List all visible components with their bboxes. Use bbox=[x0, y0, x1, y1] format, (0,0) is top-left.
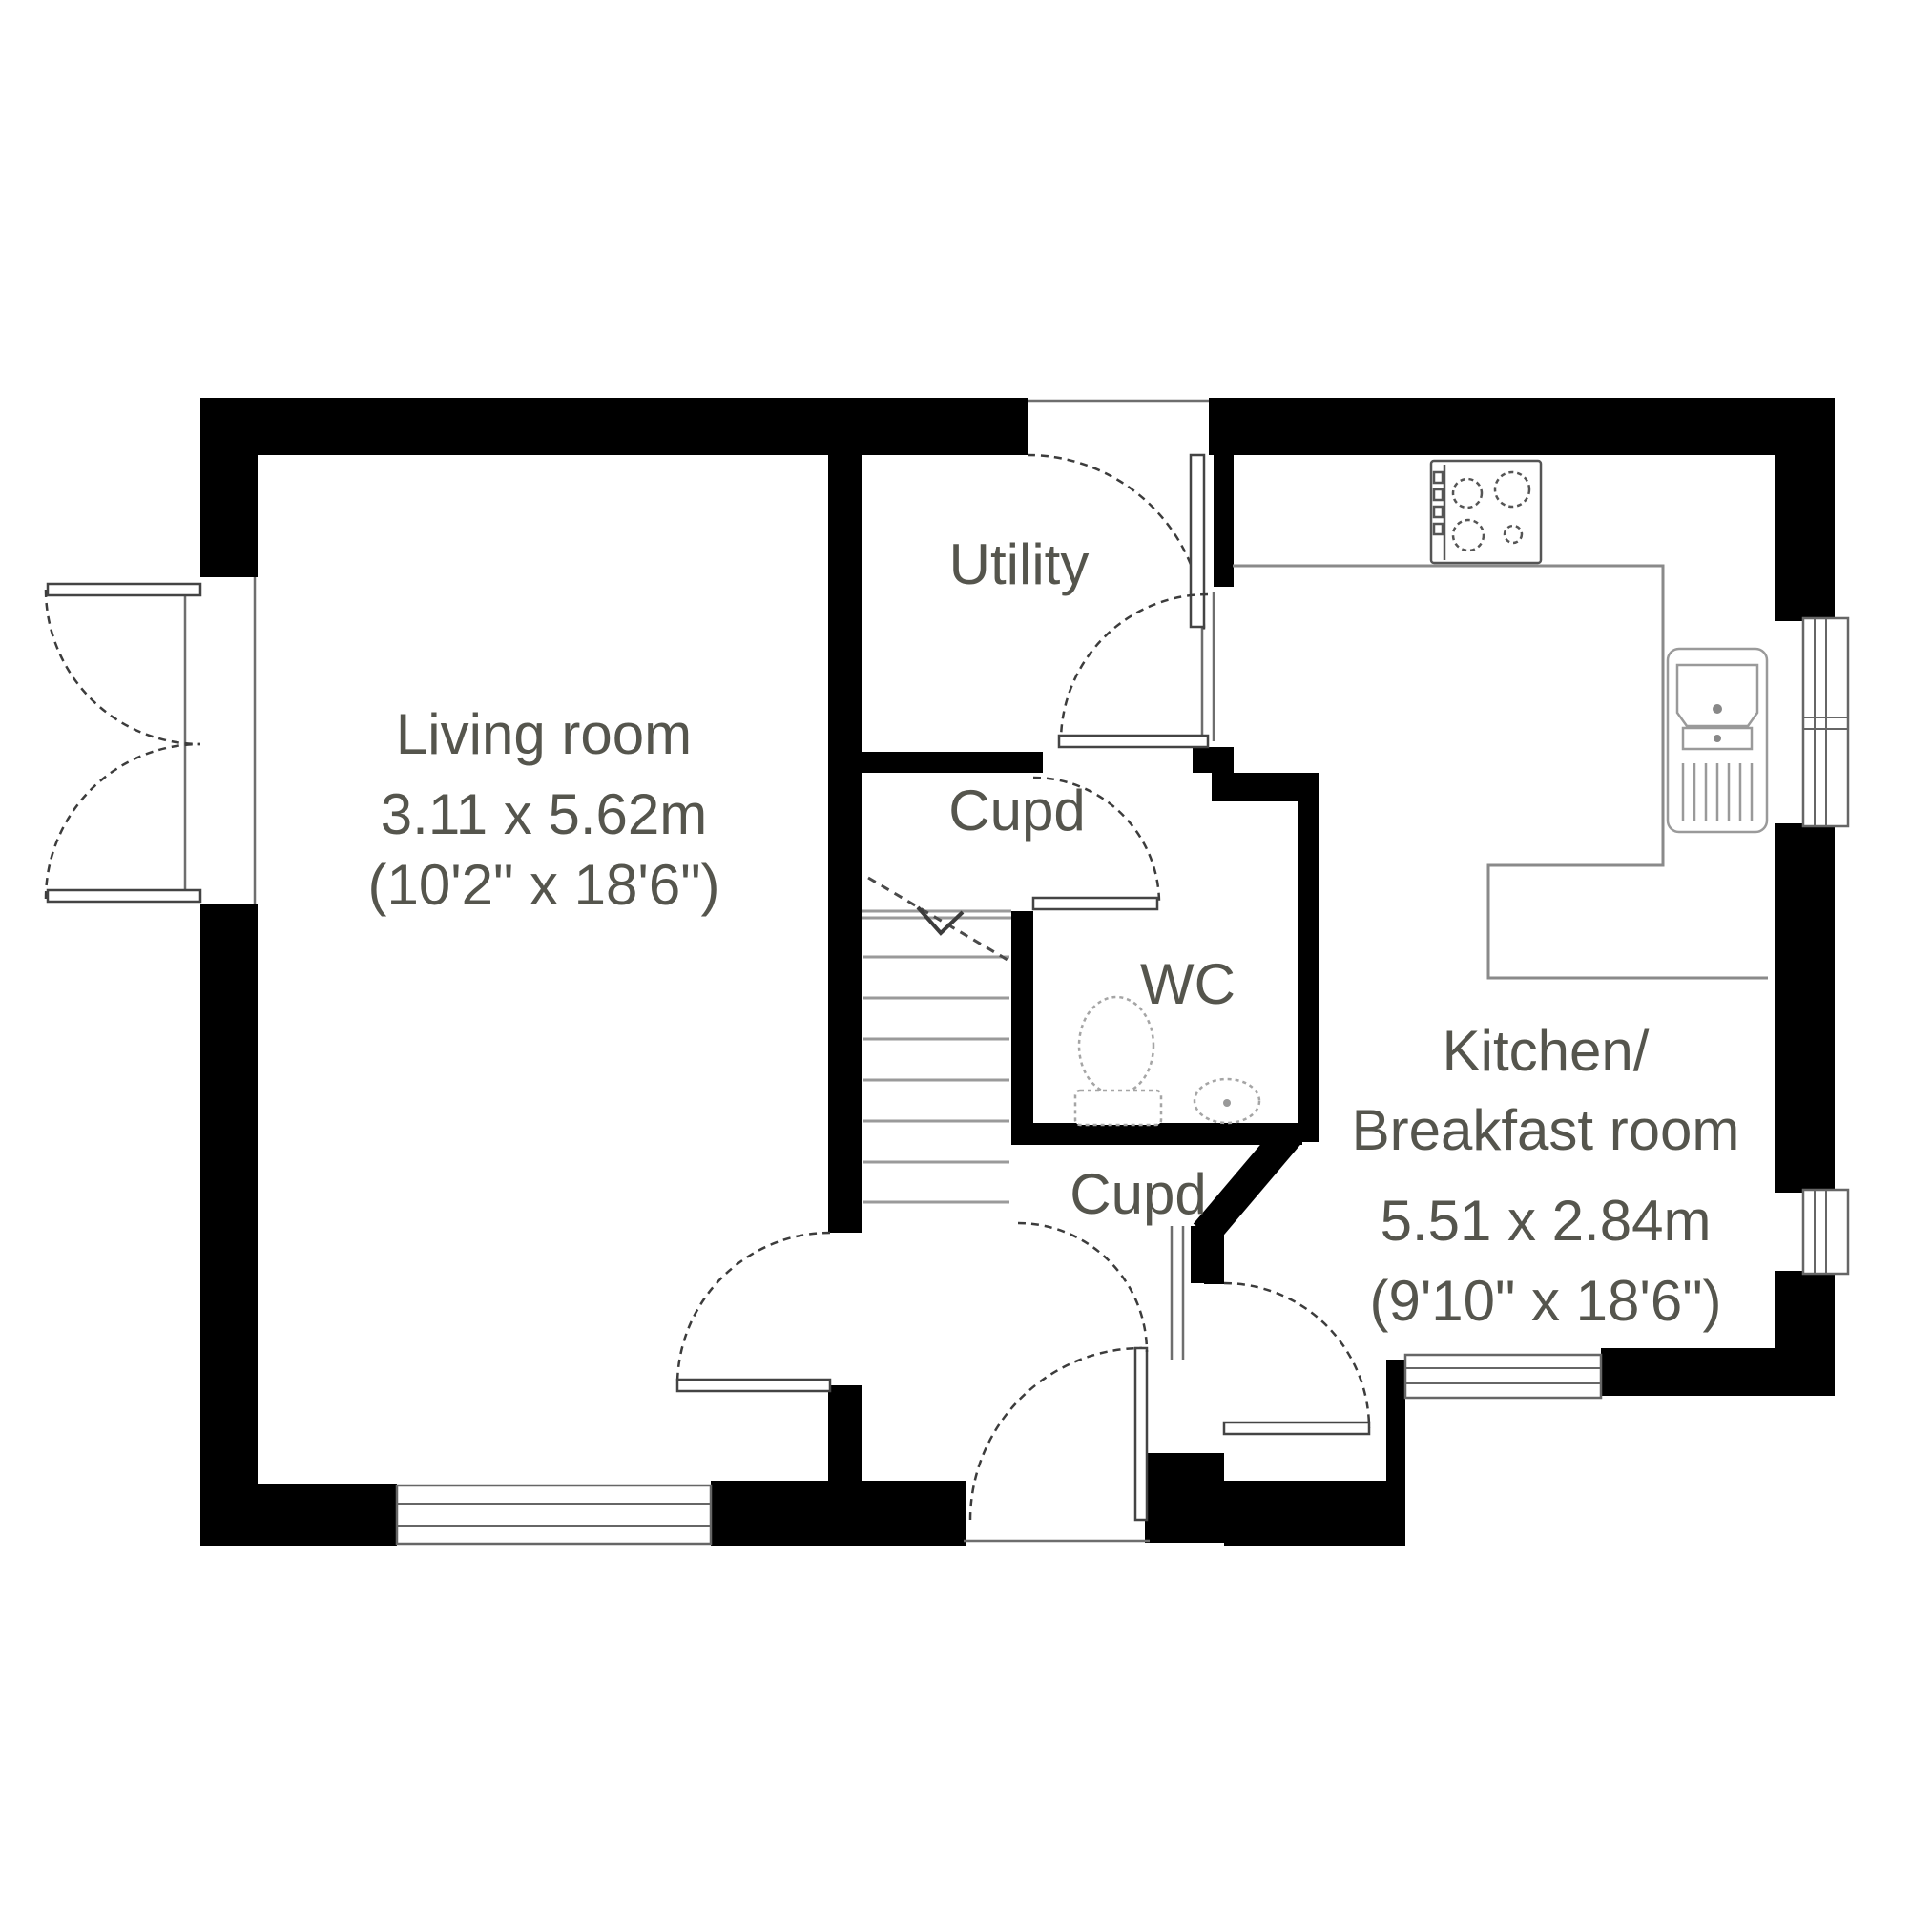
kitchen-window bbox=[1405, 1355, 1601, 1398]
hob-outline bbox=[1431, 461, 1541, 563]
floor-plan-canvas: Living room 3.11 x 5.62m (10'2" x 18'6")… bbox=[0, 0, 1932, 1932]
wall-kitchen-door-stub bbox=[1204, 1269, 1224, 1284]
cupboard-bottom-door-arc bbox=[1018, 1223, 1147, 1352]
staircase bbox=[862, 878, 1011, 1202]
sink-drainer-lines bbox=[1683, 763, 1752, 821]
french-door-arc-lower bbox=[46, 744, 200, 899]
back-door-arc bbox=[970, 1348, 1142, 1520]
wall-right-lower bbox=[1775, 1271, 1835, 1396]
wall-living-partition bbox=[828, 455, 862, 1233]
front-door-leaf bbox=[1191, 455, 1204, 627]
cupboard-top-door-leaf bbox=[1033, 898, 1157, 909]
wall-kitchen-upper-left bbox=[1214, 455, 1234, 587]
wall-bottom-mid bbox=[711, 1481, 966, 1546]
kitchen-label-line2: Breakfast room bbox=[1352, 1098, 1740, 1162]
kitchen-dim-imperial: (9'10" x 18'6") bbox=[1369, 1269, 1721, 1333]
utility-door-leaf bbox=[1059, 736, 1208, 747]
wall-left-upper bbox=[200, 398, 258, 577]
cupboard-top-label: Cupd bbox=[948, 779, 1085, 842]
wall-bottom-step bbox=[1386, 1360, 1405, 1546]
wall-bottom-left bbox=[200, 1484, 397, 1546]
wall-wc-bottom bbox=[1030, 1123, 1302, 1145]
hob-control bbox=[1434, 507, 1443, 517]
hob-burner bbox=[1495, 472, 1529, 507]
living-room-label: Living room bbox=[396, 702, 692, 766]
wall-utility-bottom-right bbox=[1193, 747, 1234, 773]
sink-tap bbox=[1713, 704, 1722, 714]
wall-bottom-hall-block bbox=[1145, 1453, 1224, 1543]
toilet bbox=[1075, 997, 1161, 1125]
wall-wc-diagonal bbox=[1205, 1133, 1290, 1234]
living-room-window bbox=[397, 1485, 711, 1544]
hob-burner bbox=[1453, 520, 1484, 551]
living-room-dim-metric: 3.11 x 5.62m bbox=[381, 782, 707, 846]
living-room-dim-imperial: (10'2" x 18'6") bbox=[367, 853, 719, 917]
floor-plan: Living room 3.11 x 5.62m (10'2" x 18'6")… bbox=[0, 0, 1932, 1932]
labels: Living room 3.11 x 5.62m (10'2" x 18'6")… bbox=[367, 532, 1739, 1333]
basin-plug bbox=[1223, 1099, 1231, 1107]
back-door-leaf bbox=[1135, 1348, 1147, 1520]
french-door-leaf-upper bbox=[48, 584, 200, 595]
wall-bottom-kitchen bbox=[1224, 1481, 1405, 1546]
wall-wc-left bbox=[1011, 911, 1033, 1145]
wall-living-partition-stub bbox=[828, 1385, 862, 1484]
wall-left-lower bbox=[200, 904, 258, 1546]
sink-bowl bbox=[1677, 665, 1757, 726]
wall-right-mid bbox=[1775, 823, 1835, 1193]
french-door-leaf-lower bbox=[48, 890, 200, 902]
toilet-cistern bbox=[1075, 1091, 1161, 1125]
basin bbox=[1195, 1079, 1259, 1123]
utility-door-arc bbox=[1061, 594, 1208, 741]
sink-drainer bbox=[1668, 649, 1767, 832]
utility-label: Utility bbox=[949, 532, 1090, 596]
hob-control bbox=[1434, 489, 1443, 500]
kitchen-door-arc bbox=[1224, 1283, 1369, 1428]
kitchen-door-leaf bbox=[1224, 1423, 1369, 1434]
wc-label: WC bbox=[1140, 952, 1236, 1016]
hob-burner bbox=[1505, 526, 1522, 543]
living-room-door-leaf bbox=[677, 1380, 830, 1391]
wall-right-upper bbox=[1775, 398, 1835, 621]
hob-control bbox=[1434, 524, 1443, 534]
hob bbox=[1431, 461, 1541, 563]
wall-top-right bbox=[1209, 398, 1835, 455]
wall-top-left bbox=[200, 398, 1028, 455]
living-room-door-arc bbox=[677, 1233, 830, 1385]
hob-control bbox=[1434, 472, 1443, 483]
kitchen-dim-metric: 5.51 x 2.84m bbox=[1381, 1189, 1712, 1253]
kitchen-label-line1: Kitchen/ bbox=[1443, 1019, 1650, 1083]
cupboard-bottom-label: Cupd bbox=[1070, 1162, 1206, 1226]
wall-utility-bottom bbox=[862, 752, 1043, 773]
sink-plug bbox=[1714, 735, 1721, 742]
french-door-arc-upper bbox=[46, 590, 200, 744]
wall-wc-right bbox=[1298, 797, 1319, 1142]
hob-burner bbox=[1453, 479, 1482, 508]
